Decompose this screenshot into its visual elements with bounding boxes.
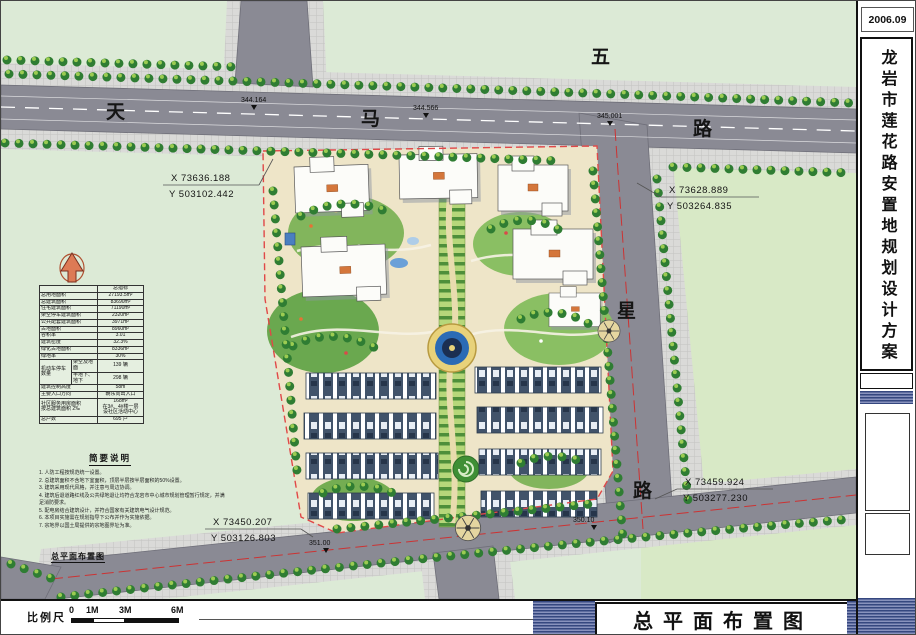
indicators-header: 总指标 <box>98 286 144 293</box>
drawing-label-small: 总平面布置图 <box>51 551 105 563</box>
elevation-label: 351.00 <box>309 540 331 547</box>
elevation-label: 345.001 <box>597 113 622 120</box>
pond <box>390 258 408 268</box>
notes-list: 1. 人防工程按规范统一设置。2. 总建筑面积不含地下室面积，顶层半层按半层面积… <box>39 470 227 530</box>
traffic-circle <box>598 320 620 342</box>
elevation-label: 344.164 <box>241 97 266 104</box>
road-label-xing: 星 <box>617 300 636 322</box>
swirl-plaza <box>453 456 479 482</box>
plan-sheet: 天 马 路 五 星 路 344.164 344.566 345.001 351.… <box>0 0 916 635</box>
coord-y: Y 503102.442 <box>169 189 234 200</box>
scale-bar: 0 1M 3M 6M <box>69 605 199 631</box>
site-plan-map: 天 马 路 五 星 路 344.164 344.566 345.001 351.… <box>1 1 856 599</box>
title-strip: 比例尺 0 1M 3M 6M 总平面布置图 <box>1 599 856 635</box>
coord-x: X 73628.889 <box>669 185 728 196</box>
sidebar-box <box>865 513 910 555</box>
scale-tick: 6M <box>171 605 184 615</box>
scale-tick: 1M <box>86 605 99 615</box>
titleblock-line <box>199 619 533 620</box>
road-label-wu: 五 <box>591 47 610 68</box>
notes-block: 简要说明 1. 人防工程按规范统一设置。2. 总建筑面积不含地下室面积，顶层半层… <box>39 448 227 530</box>
road-label-ma: 马 <box>361 109 380 130</box>
indicators-table: 总指标 总用地面积27193.5m²总建筑面积83690m²住宅建筑面积7119… <box>39 285 144 424</box>
coord-x: X 73459.924 <box>685 477 744 488</box>
date-box: 2006.09 <box>861 7 914 32</box>
north-arrow-icon <box>60 253 84 282</box>
project-title: 龙岩市莲花路安置地规划设计方案 <box>875 49 899 369</box>
coord-y: Y 503277.230 <box>683 493 748 504</box>
building-tower <box>498 156 571 216</box>
coord-x: X 73636.188 <box>171 173 230 184</box>
coord-y: Y 503264.835 <box>667 201 732 212</box>
title-block-sidebar: 2006.09 龙岩市莲花路安置地规划设计方案 <box>856 1 916 635</box>
hatch-band <box>533 601 595 635</box>
notes-title: 简要说明 <box>89 452 131 466</box>
coord-y: Y 503126.803 <box>211 533 276 544</box>
pond <box>407 237 419 245</box>
building-tower <box>549 287 603 330</box>
road-label-lu2: 路 <box>633 479 653 502</box>
utility-shed <box>285 233 295 245</box>
scale-tick: 0 <box>69 605 74 615</box>
scale-label: 比例尺 <box>27 609 66 625</box>
indicators-header-blank <box>40 286 98 293</box>
hatch-band <box>858 598 916 635</box>
sidebar-box <box>865 413 910 511</box>
elevation-label: 350.10 <box>573 517 595 524</box>
hatch-band <box>860 391 913 404</box>
sidebar-empty-row <box>860 373 913 389</box>
hatch-band <box>847 601 856 635</box>
scale-tick: 3M <box>119 605 132 615</box>
north-road-stub <box>235 1 313 87</box>
traffic-circle <box>455 515 480 540</box>
project-title-box: 龙岩市莲花路安置地规划设计方案 <box>860 37 913 371</box>
road-label-tian: 天 <box>106 102 126 123</box>
central-fountain <box>428 324 476 372</box>
drawing-title: 总平面布置图 <box>595 602 851 635</box>
elevation-label: 344.566 <box>413 105 438 112</box>
road-label-lu1: 路 <box>693 117 713 140</box>
